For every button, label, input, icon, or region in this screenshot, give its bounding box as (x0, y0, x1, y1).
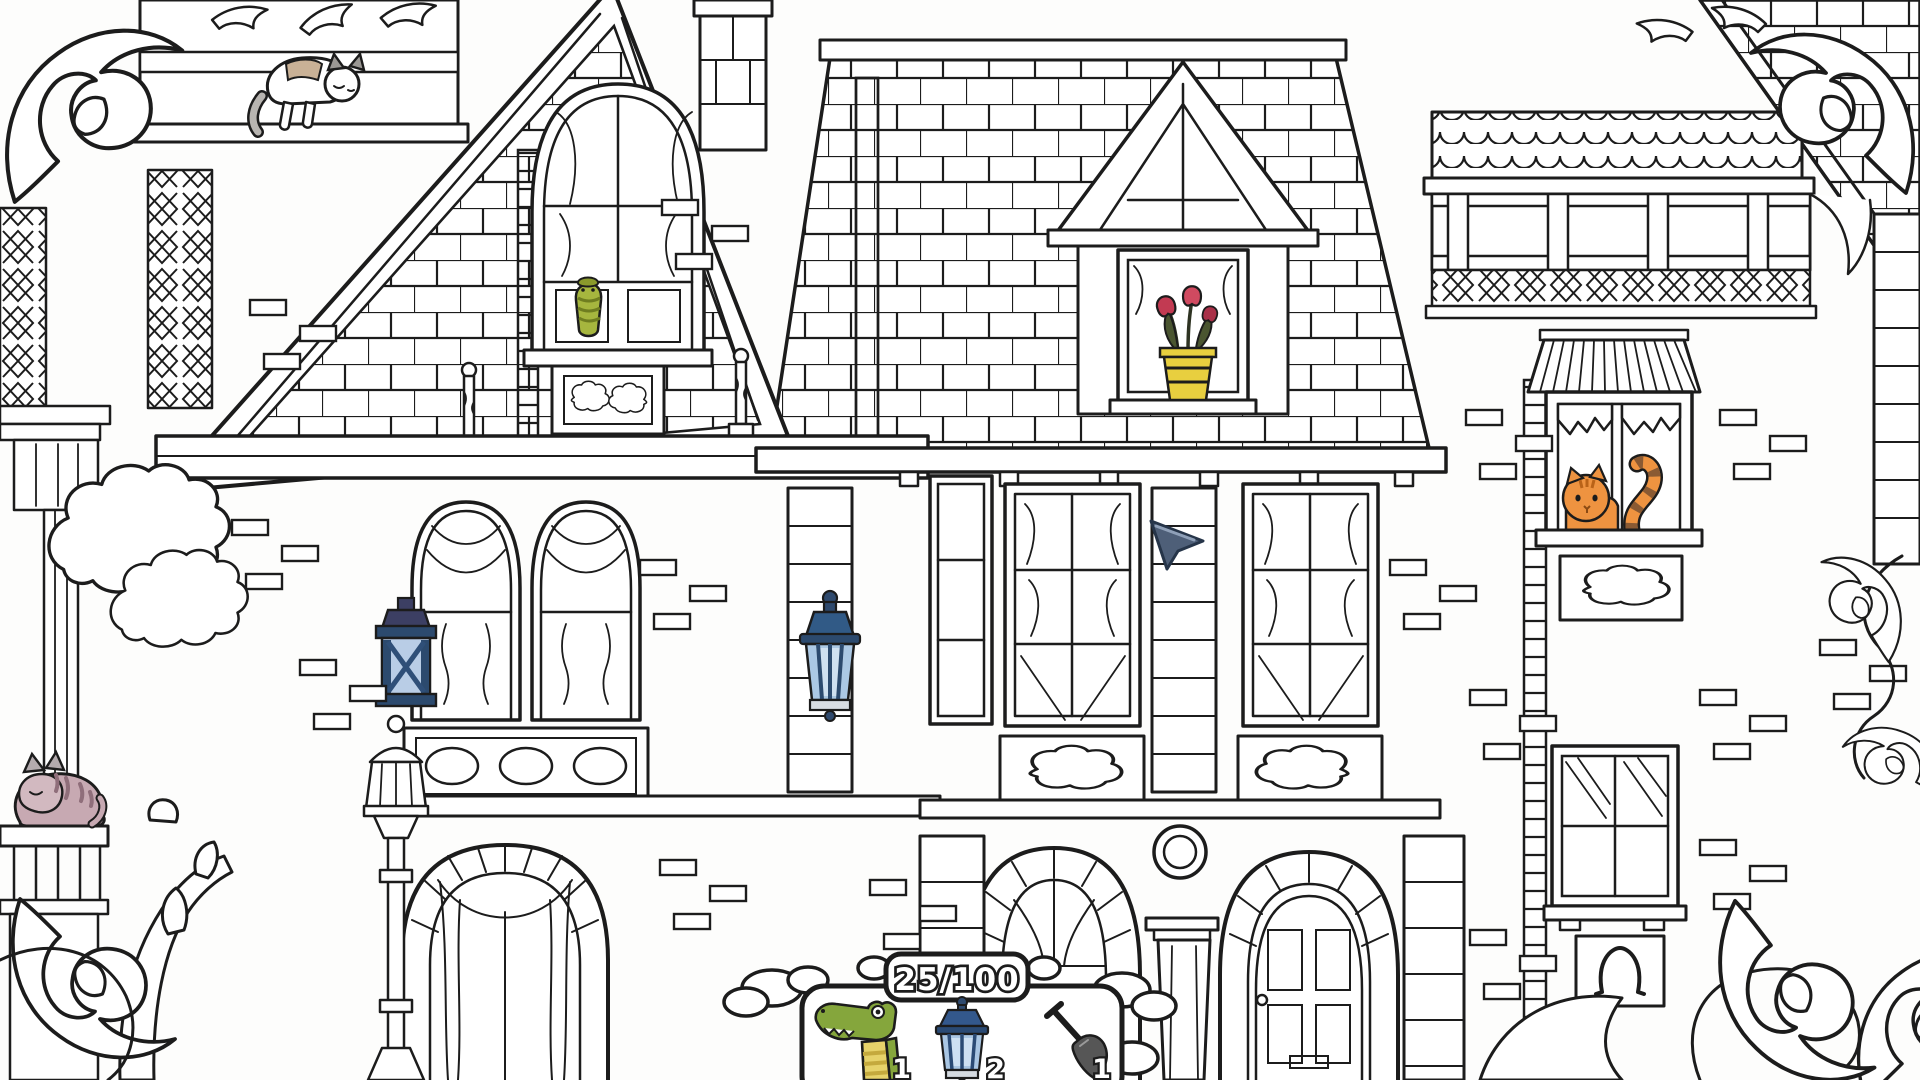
bat-relief-plaque (552, 366, 664, 434)
ground-window-left (402, 845, 608, 1080)
front-door (1220, 852, 1398, 1080)
caterpillar[interactable] (576, 278, 601, 337)
game-screen: 25/100 1 2 1 (0, 0, 1920, 1080)
chimney (694, 0, 772, 150)
balcony-panel (404, 728, 648, 804)
counter-text: 25/100 (894, 962, 1019, 998)
window-arched-right (532, 502, 640, 720)
cat-window-sill (1536, 530, 1702, 546)
window-center-a (1005, 484, 1140, 726)
window-center-b (1243, 484, 1378, 726)
sill-band-center (920, 800, 1440, 818)
quoin-pier-ground-right (1404, 836, 1464, 1080)
relief-panel-right (1560, 556, 1682, 620)
lantern-count: 2 (986, 1054, 1006, 1080)
half-timber-frieze (1432, 194, 1871, 274)
awning (1528, 330, 1700, 392)
shovel-count: 1 (1092, 1054, 1112, 1080)
scene-illustration: 25/100 1 2 1 (0, 0, 1920, 1080)
quoin-right-edge (1874, 214, 1920, 564)
crocodile-count: 1 (892, 1054, 912, 1080)
relief-plaque-b (1238, 736, 1382, 806)
stair-window (930, 476, 992, 724)
porthole (1154, 826, 1206, 878)
lower-right-window (1544, 746, 1686, 930)
relief-plaque-a (1000, 736, 1144, 806)
lattice-band (1426, 270, 1816, 318)
attic-window (524, 84, 712, 366)
sill-band-left (380, 796, 940, 816)
